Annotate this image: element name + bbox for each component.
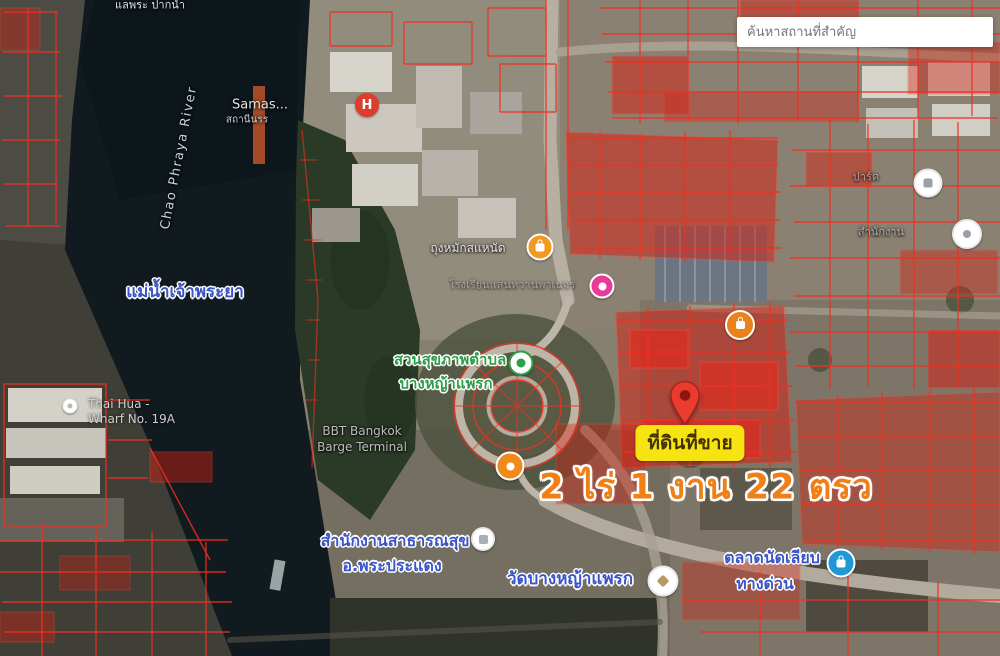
- map-label-river-th: แม่น้ำเจ้าพระยา: [126, 283, 244, 303]
- poi-icon-pink[interactable]: [590, 274, 615, 299]
- map-label-faint-right-2: สำนักงาน: [858, 227, 904, 240]
- temple-icon[interactable]: [648, 566, 679, 597]
- map-label-school: โรงเรียนแสนหวานพาเนจร: [449, 280, 575, 293]
- park-tree-icon[interactable]: [509, 351, 534, 376]
- land-area-text: 2 ไร่ 1 งาน 22 ตรว: [539, 460, 873, 515]
- poi-icon-orange-south[interactable]: [496, 452, 525, 481]
- wharf-line2: Wharf No. 19A: [88, 412, 175, 427]
- map-label-wharf: Thai Hua - Wharf No. 19A: [88, 397, 175, 427]
- poi-icon-orange-east[interactable]: [725, 310, 755, 340]
- map-label-faint-right-1: ปาร์ค: [853, 172, 879, 185]
- map-label-market-line1: ตลาดนัดเลียบ: [724, 549, 820, 567]
- search-input[interactable]: [737, 17, 993, 47]
- map-label-top-edge: แลพระ ปากน้ำ: [115, 0, 185, 12]
- health-office-icon[interactable]: [471, 527, 495, 551]
- hospital-icon[interactable]: H: [355, 93, 379, 117]
- map-label-terminal-line1: BBT Bangkok: [322, 425, 401, 439]
- map-label-health-line2: อ.พระประแดง: [342, 557, 441, 575]
- map-label-terminal-line2: Barge Terminal: [317, 441, 407, 455]
- map-label-temple: วัดบางหญ้าแพรก: [507, 570, 633, 590]
- map-label-park-line1: สวนสุขภาพตำบล: [394, 351, 506, 368]
- map-label-park-line2: บางหญ้าแพรก: [399, 375, 492, 392]
- map-label-pier: Samas...: [232, 99, 288, 114]
- map-canvas[interactable]: แลพระ ปากน้ำ Chao Phraya River Samas... …: [0, 0, 1000, 656]
- wharf-line1: Thai Hua -: [88, 397, 175, 412]
- map-label-health-line1: สำนักงานสาธารณสุข: [321, 532, 470, 550]
- location-pin-icon[interactable]: [669, 380, 701, 426]
- sale-label-badge: ที่ดินที่ขาย: [635, 425, 744, 461]
- map-label-market-line2: ทางด่วน: [736, 575, 794, 593]
- wharf-dot-icon[interactable]: [63, 399, 78, 414]
- poi-icon-white-north[interactable]: [914, 169, 943, 198]
- map-label-poi-north: ถุงหมักสแหนัด: [430, 242, 505, 256]
- shopping-icon-orange[interactable]: [527, 234, 554, 261]
- map-label-pier-sub: สถานีนรร: [226, 114, 268, 126]
- poi-icon-white-south[interactable]: [952, 219, 982, 249]
- market-icon-blue[interactable]: [827, 549, 856, 578]
